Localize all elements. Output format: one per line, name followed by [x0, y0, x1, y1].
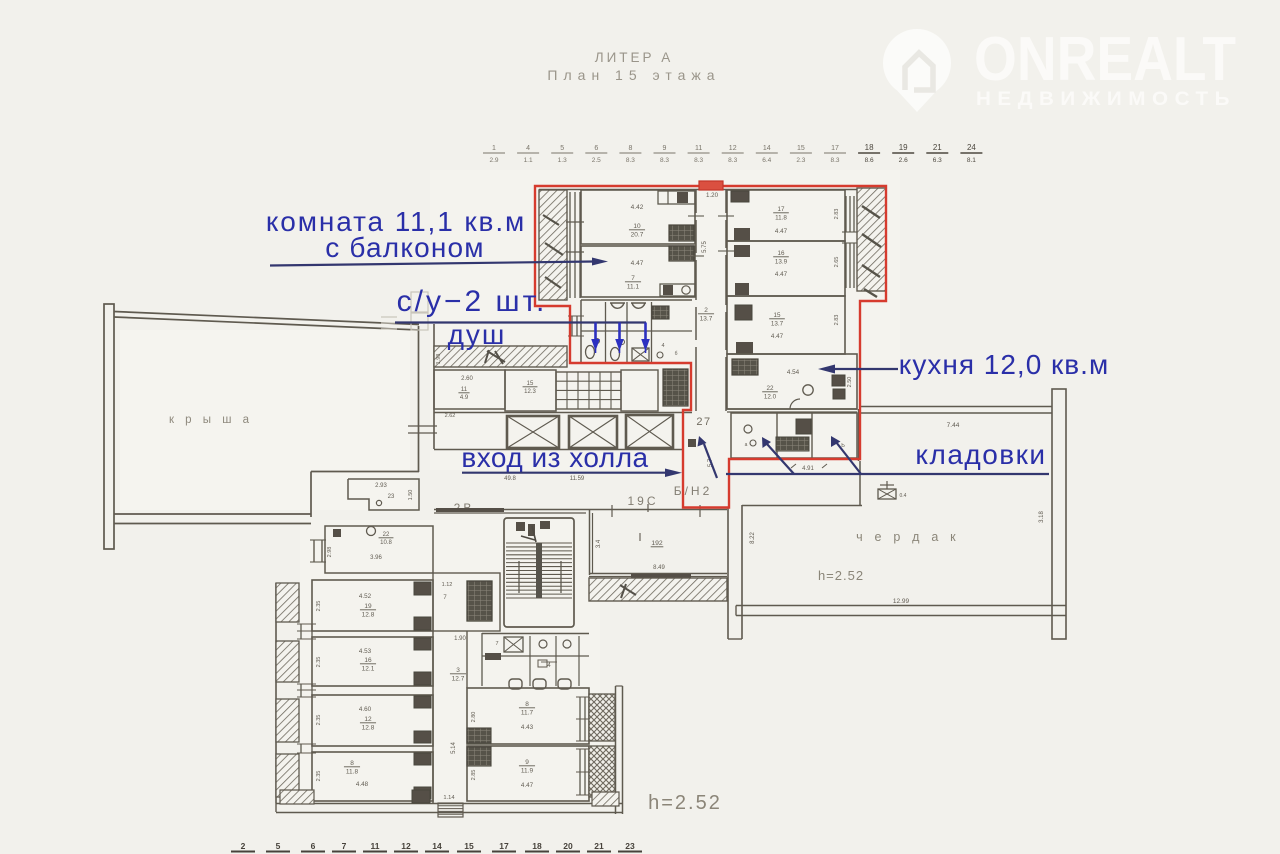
svg-text:2.93: 2.93 [375, 483, 387, 489]
svg-text:8.3: 8.3 [694, 157, 703, 164]
svg-text:13.7: 13.7 [700, 316, 713, 323]
svg-text:17: 17 [831, 145, 839, 152]
svg-text:2.9: 2.9 [489, 157, 498, 164]
svg-text:ЛИТЕР А: ЛИТЕР А [595, 50, 674, 65]
svg-text:2.3: 2.3 [796, 157, 805, 164]
svg-text:8.6: 8.6 [865, 157, 874, 164]
svg-text:2.6: 2.6 [899, 157, 908, 164]
svg-text:6.4: 6.4 [762, 157, 771, 164]
svg-text:с/у−2 шт.: с/у−2 шт. [397, 285, 548, 318]
svg-text:2.5: 2.5 [592, 157, 601, 164]
svg-text:8: 8 [628, 145, 632, 152]
svg-text:23: 23 [625, 841, 635, 851]
svg-text:17: 17 [777, 206, 785, 213]
svg-text:13.9: 13.9 [775, 259, 788, 266]
svg-text:22: 22 [383, 532, 390, 538]
svg-text:21: 21 [594, 841, 604, 851]
svg-text:7: 7 [495, 641, 498, 647]
svg-text:11: 11 [695, 145, 702, 152]
svg-text:21: 21 [933, 143, 942, 152]
svg-text:3.96: 3.96 [370, 555, 382, 561]
svg-text:11.7: 11.7 [521, 710, 534, 717]
svg-text:4.43: 4.43 [521, 724, 534, 731]
svg-text:4.47: 4.47 [631, 260, 644, 267]
svg-text:22: 22 [766, 385, 774, 392]
svg-text:18: 18 [532, 841, 542, 851]
svg-text:8.3: 8.3 [830, 157, 839, 164]
svg-text:НЕДВИЖИМОСТЬ: НЕДВИЖИМОСТЬ [976, 89, 1236, 110]
svg-text:2.62: 2.62 [445, 413, 456, 419]
svg-text:11.1: 11.1 [627, 284, 640, 291]
svg-text:6: 6 [594, 145, 598, 152]
svg-text:19: 19 [364, 603, 372, 610]
svg-text:ч е р д а к: ч е р д а к [856, 530, 960, 544]
svg-text:4.42: 4.42 [631, 204, 644, 211]
svg-text:с балконом: с балконом [325, 232, 485, 263]
svg-text:12.8: 12.8 [362, 612, 375, 619]
svg-text:1.14: 1.14 [443, 795, 455, 801]
svg-text:14: 14 [763, 145, 771, 152]
svg-text:вход из холла: вход из холла [461, 442, 648, 473]
svg-text:17: 17 [499, 841, 509, 851]
svg-text:3: 3 [456, 667, 460, 674]
svg-text:1.3: 1.3 [558, 157, 567, 164]
svg-text:13.7: 13.7 [771, 321, 784, 328]
svg-text:а: а [745, 442, 748, 448]
svg-text:2.35: 2.35 [316, 771, 322, 782]
svg-text:План 15 этажа: План 15 этажа [547, 67, 720, 83]
svg-text:12: 12 [401, 841, 411, 851]
svg-text:4.52: 4.52 [359, 593, 372, 600]
svg-text:20.7: 20.7 [631, 232, 644, 239]
svg-text:192: 192 [651, 540, 663, 547]
svg-text:12.7: 12.7 [452, 676, 465, 683]
svg-text:11.59: 11.59 [570, 476, 585, 482]
svg-text:2.85: 2.85 [471, 770, 477, 781]
svg-text:5: 5 [560, 145, 564, 152]
svg-text:5.14: 5.14 [451, 742, 457, 754]
svg-text:2.80: 2.80 [471, 712, 477, 723]
svg-text:1.98: 1.98 [436, 354, 442, 365]
svg-text:4: 4 [526, 145, 530, 152]
svg-text:1.50: 1.50 [408, 490, 414, 501]
svg-text:15: 15 [464, 841, 474, 851]
svg-text:4.91: 4.91 [802, 466, 814, 472]
svg-text:4.47: 4.47 [521, 782, 534, 789]
svg-text:27: 27 [696, 416, 711, 428]
svg-text:7: 7 [342, 841, 347, 851]
svg-text:6: 6 [311, 841, 316, 851]
svg-text:12.1: 12.1 [362, 666, 375, 673]
svg-text:4.53: 4.53 [359, 648, 372, 655]
svg-text:16: 16 [777, 250, 785, 257]
svg-text:7.44: 7.44 [947, 422, 960, 429]
svg-text:12.3: 12.3 [524, 389, 536, 395]
svg-text:Б/Н2: Б/Н2 [674, 484, 713, 498]
svg-text:h=2.52: h=2.52 [818, 568, 864, 583]
svg-text:к р ы ш а: к р ы ш а [169, 414, 253, 426]
svg-text:4.48: 4.48 [356, 781, 369, 788]
svg-text:3.4: 3.4 [596, 539, 602, 548]
svg-text:8: 8 [350, 760, 354, 767]
svg-text:8.3: 8.3 [626, 157, 635, 164]
svg-text:10: 10 [633, 223, 641, 230]
svg-text:6.3: 6.3 [933, 157, 942, 164]
svg-text:8.22: 8.22 [750, 532, 756, 544]
svg-text:5: 5 [276, 841, 281, 851]
svg-text:2.35: 2.35 [316, 601, 322, 612]
svg-text:3.18: 3.18 [1039, 511, 1045, 523]
svg-text:1.20: 1.20 [706, 192, 719, 199]
svg-text:б: б [675, 351, 678, 357]
svg-text:2.65: 2.65 [834, 257, 840, 268]
svg-text:2.60: 2.60 [461, 376, 473, 382]
svg-text:4: 4 [661, 343, 664, 349]
svg-text:15: 15 [797, 145, 805, 152]
svg-text:11.8: 11.8 [775, 215, 787, 222]
svg-text:2.83: 2.83 [834, 209, 840, 220]
svg-text:ONREALT: ONREALT [974, 25, 1236, 94]
svg-text:8.1: 8.1 [967, 157, 976, 164]
svg-text:15: 15 [527, 381, 534, 387]
svg-text:9: 9 [663, 145, 667, 152]
svg-text:8.3: 8.3 [660, 157, 669, 164]
svg-text:12.0: 12.0 [764, 394, 777, 401]
svg-text:4.47: 4.47 [771, 333, 784, 340]
svg-text:4.60: 4.60 [359, 706, 372, 713]
svg-text:9: 9 [525, 759, 529, 766]
svg-text:19С: 19С [627, 494, 658, 508]
svg-text:8: 8 [525, 701, 529, 708]
svg-text:23: 23 [388, 494, 395, 500]
svg-text:кладовки: кладовки [915, 439, 1046, 470]
svg-text:2.35: 2.35 [316, 657, 322, 668]
svg-text:12.8: 12.8 [362, 725, 375, 732]
svg-text:1.12: 1.12 [442, 582, 453, 588]
svg-text:2.98: 2.98 [327, 547, 333, 558]
svg-text:20: 20 [563, 841, 573, 851]
svg-text:2.83: 2.83 [834, 315, 840, 326]
svg-text:2: 2 [704, 307, 708, 314]
svg-text:h=2.52: h=2.52 [648, 792, 722, 814]
svg-text:1: 1 [492, 145, 496, 152]
svg-text:11.9: 11.9 [521, 768, 534, 775]
svg-text:4.47: 4.47 [775, 228, 788, 235]
svg-text:19: 19 [899, 143, 908, 152]
svg-text:49.8: 49.8 [504, 476, 516, 482]
svg-text:11: 11 [461, 387, 468, 393]
svg-text:4.9: 4.9 [460, 395, 469, 401]
svg-text:18: 18 [865, 143, 874, 152]
svg-text:7: 7 [631, 275, 635, 282]
svg-text:16: 16 [364, 657, 372, 664]
svg-text:4.54: 4.54 [787, 369, 800, 376]
svg-text:14: 14 [432, 841, 442, 851]
svg-text:кухня 12,0 кв.м: кухня 12,0 кв.м [899, 349, 1109, 380]
svg-text:11.8: 11.8 [346, 769, 359, 776]
svg-text:10.8: 10.8 [380, 540, 392, 546]
svg-text:4.47: 4.47 [775, 271, 788, 278]
svg-text:24: 24 [967, 143, 976, 152]
svg-text:2: 2 [241, 841, 246, 851]
svg-text:8.3: 8.3 [728, 157, 737, 164]
svg-text:1.90: 1.90 [454, 636, 466, 642]
svg-text:2.35: 2.35 [316, 715, 322, 726]
svg-text:12.99: 12.99 [893, 598, 910, 605]
svg-text:15: 15 [773, 312, 781, 319]
svg-text:2.50: 2.50 [847, 377, 853, 388]
svg-text:12: 12 [364, 716, 372, 723]
svg-text:0.4: 0.4 [900, 493, 907, 499]
svg-text:11: 11 [371, 841, 380, 851]
svg-text:5.75: 5.75 [702, 241, 708, 253]
svg-text:1.1: 1.1 [524, 157, 533, 164]
svg-text:12: 12 [729, 145, 737, 152]
svg-text:8.49: 8.49 [653, 565, 665, 571]
